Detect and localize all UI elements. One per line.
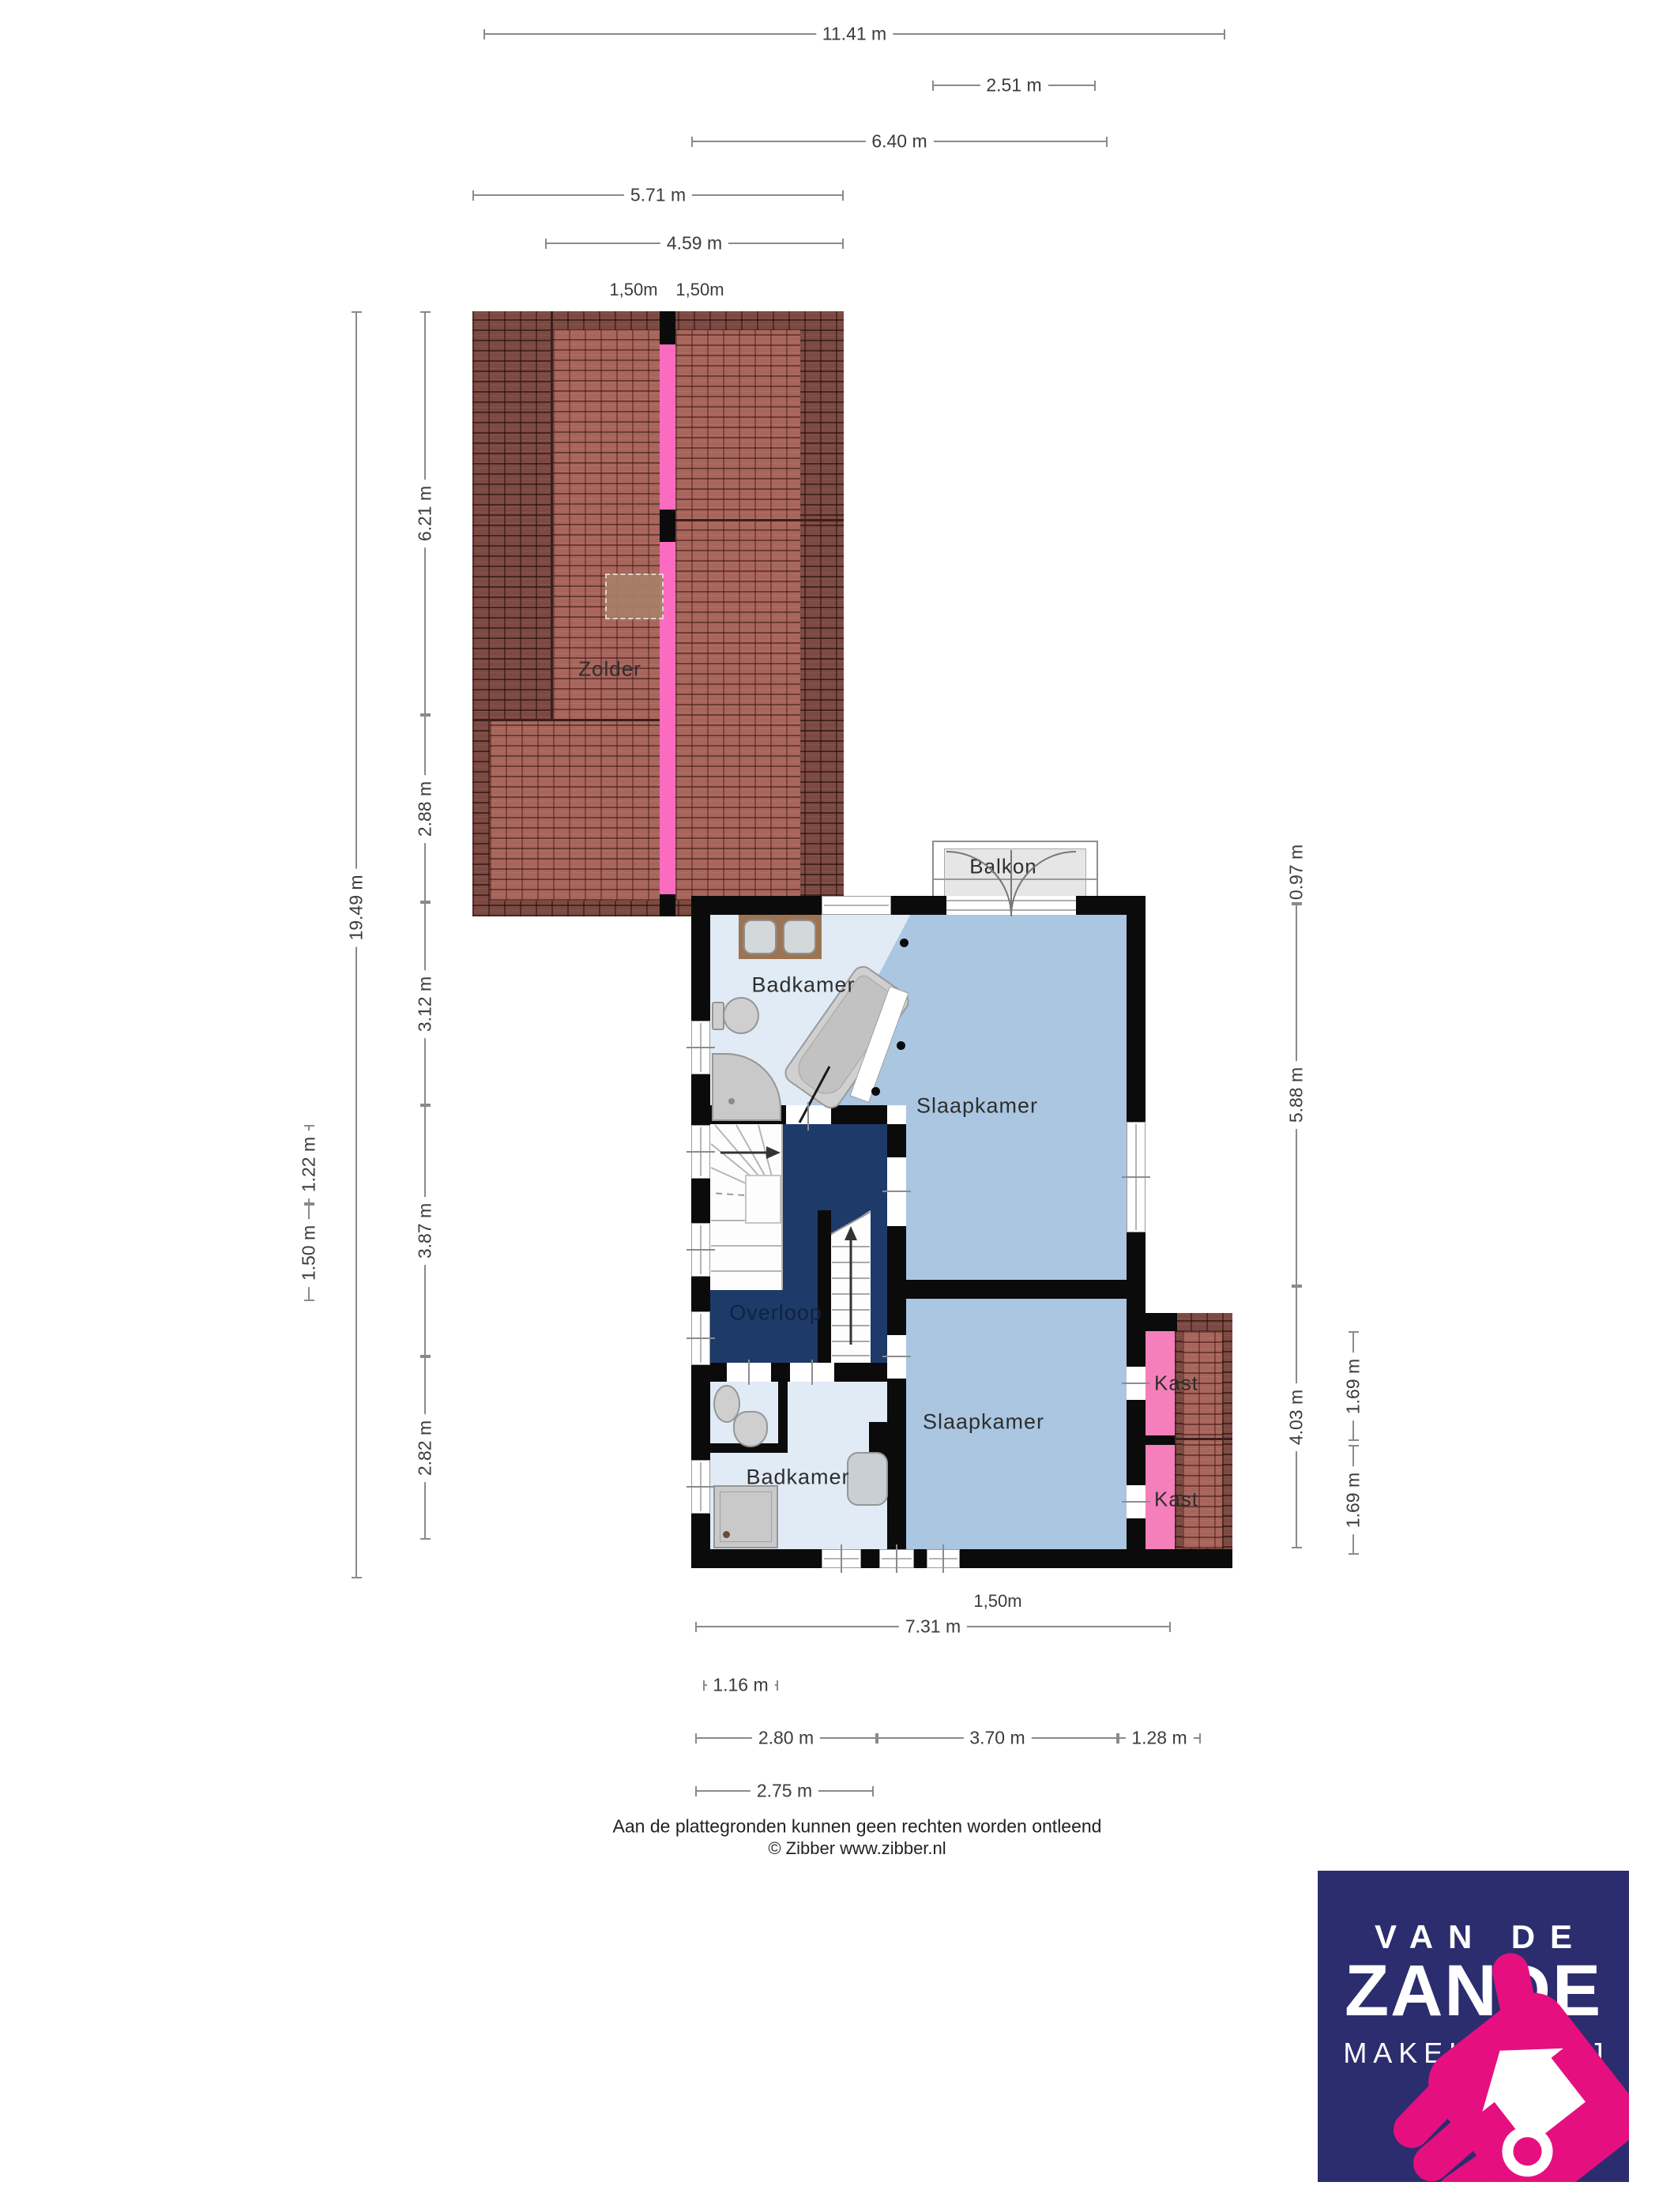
door-threshold: [946, 900, 1076, 901]
wall-segment: [861, 1549, 879, 1568]
footer-credit: © Zibber www.zibber.nl: [768, 1838, 946, 1859]
door-opening-balcony: [946, 896, 1076, 915]
wall-segment: [834, 1363, 887, 1382]
dim-1-28: 1.28 m: [1118, 1737, 1201, 1739]
shower-drain: [723, 1531, 730, 1538]
wall-segment: [1127, 896, 1145, 1122]
wall-segment: [691, 1074, 710, 1125]
dim-4-03: 4.03 m: [1296, 1286, 1297, 1548]
wall-segment: [1145, 1435, 1175, 1445]
room-label-badkamer-boven: Badkamer: [751, 973, 855, 998]
dim-5-71: 5.71 m: [472, 194, 844, 196]
dim-2-88: 2.88 m: [424, 715, 426, 902]
roof-ridge-line: [675, 519, 844, 521]
wall-segment: [1127, 1400, 1145, 1485]
stairs-winder-area: [710, 1124, 782, 1290]
roof-ridge-line: [1175, 1438, 1232, 1440]
logo-van-de-zande: VAN DE ZANDE MAKELAARDIJ: [1318, 1871, 1629, 2182]
footer-disclaimer: Aan de plattegronden kunnen geen rechten…: [613, 1816, 1102, 1838]
door-pivot: [897, 1041, 905, 1050]
roof-ridge-line: [472, 719, 660, 721]
door-opening: [1127, 1485, 1145, 1518]
wall-segment: [691, 1179, 710, 1223]
dim-7-31: 7.31 m: [695, 1626, 1171, 1627]
wall-segment: [691, 1365, 710, 1460]
roof-panel: [675, 330, 800, 901]
wall-segment: [887, 1379, 906, 1549]
room-label-zolder: Zolder: [578, 657, 641, 682]
dim-6-40: 6.40 m: [691, 141, 1108, 142]
wall-segment: [914, 1549, 927, 1568]
dim-2-75: 2.75 m: [695, 1790, 874, 1792]
dim-5-88: 5.88 m: [1296, 904, 1297, 1286]
room-label-slaapkamer-1: Slaapkamer: [916, 1094, 1038, 1119]
sink: [743, 920, 777, 954]
wall-segment: [691, 1549, 822, 1568]
roof-panel: [490, 720, 660, 901]
dim-11-41: 11.41 m: [483, 33, 1225, 35]
skylight: [605, 574, 664, 619]
door-pivot: [871, 1087, 880, 1096]
wall-segment: [887, 1299, 906, 1335]
wall-segment: [831, 1105, 887, 1124]
floorplan-canvas: Zolder Balkon: [0, 0, 1659, 2212]
dim-1-50-annex: 1,50m: [973, 1591, 1021, 1612]
window: [879, 1549, 914, 1568]
dim-1-69-a: 1.69 m: [1352, 1331, 1354, 1441]
wall-segment: [710, 1363, 727, 1382]
toilet-bowl: [723, 997, 759, 1034]
window: [691, 1460, 710, 1514]
dim-ridge-150-left: 1,50m: [609, 280, 657, 300]
wall-segment: [960, 1549, 1232, 1568]
dim-2-82: 2.82 m: [424, 1356, 426, 1540]
dim-19-49: 19.49 m: [355, 311, 357, 1578]
door-opening: [1127, 1367, 1145, 1400]
shower-drain: [728, 1098, 735, 1104]
dim-1-50-left: 1.50 m: [308, 1204, 310, 1301]
dim-ridge-150-right: 1,50m: [675, 280, 724, 300]
wall-segment: [660, 311, 675, 344]
window: [822, 1549, 861, 1568]
wall-segment: [887, 1124, 906, 1157]
wall-segment: [1127, 1313, 1177, 1331]
dim-4-59: 4.59 m: [545, 243, 844, 244]
room-label-balkon: Balkon: [969, 855, 1037, 879]
wall-segment: [691, 915, 710, 1021]
wall-segment: [691, 1277, 710, 1311]
sink: [783, 920, 816, 954]
dim-1-16: 1.16 m: [703, 1684, 778, 1686]
room-label-badkamer-onder: Badkamer: [746, 1465, 849, 1490]
wall-segment: [660, 510, 675, 542]
room-label-slaapkamer-2: Slaapkamer: [923, 1410, 1044, 1435]
dim-3-87: 3.87 m: [424, 1105, 426, 1356]
window: [822, 896, 891, 915]
stairs-down-area: [831, 1210, 871, 1365]
window: [691, 1125, 710, 1179]
wall-segment: [691, 896, 822, 915]
wall-segment: [818, 1210, 831, 1363]
dim-1-22: 1.22 m: [308, 1125, 310, 1204]
dim-0-97: 0.97 m: [1296, 841, 1297, 904]
room-label-kast-1: Kast: [1154, 1371, 1198, 1396]
wall-segment: [778, 1382, 788, 1453]
wall-segment: [1127, 1232, 1145, 1313]
roof-ridge-line: [551, 311, 553, 720]
window: [691, 1223, 710, 1277]
dim-2-80: 2.80 m: [695, 1737, 877, 1739]
door-threshold: [946, 909, 1076, 911]
wall-segment: [891, 896, 946, 915]
door-pivot: [900, 939, 908, 947]
dim-2-51: 2.51 m: [932, 85, 1096, 86]
sink: [847, 1452, 888, 1506]
window: [691, 1311, 710, 1365]
window: [1127, 1122, 1145, 1232]
room-label-kast-2: Kast: [1154, 1488, 1198, 1512]
dim-3-70: 3.70 m: [877, 1737, 1118, 1739]
window: [927, 1549, 960, 1568]
dim-1-69-b: 1.69 m: [1352, 1445, 1354, 1555]
window: [691, 1021, 710, 1074]
wall-segment: [660, 894, 675, 916]
wall-segment: [771, 1363, 790, 1382]
wall-segment: [887, 1280, 1145, 1299]
room-label-overloop: Overloop: [729, 1301, 822, 1326]
toilet-bowl: [733, 1411, 768, 1447]
dim-3-12: 3.12 m: [424, 902, 426, 1105]
wall-segment: [887, 1226, 906, 1280]
dim-6-21: 6.21 m: [424, 311, 426, 715]
